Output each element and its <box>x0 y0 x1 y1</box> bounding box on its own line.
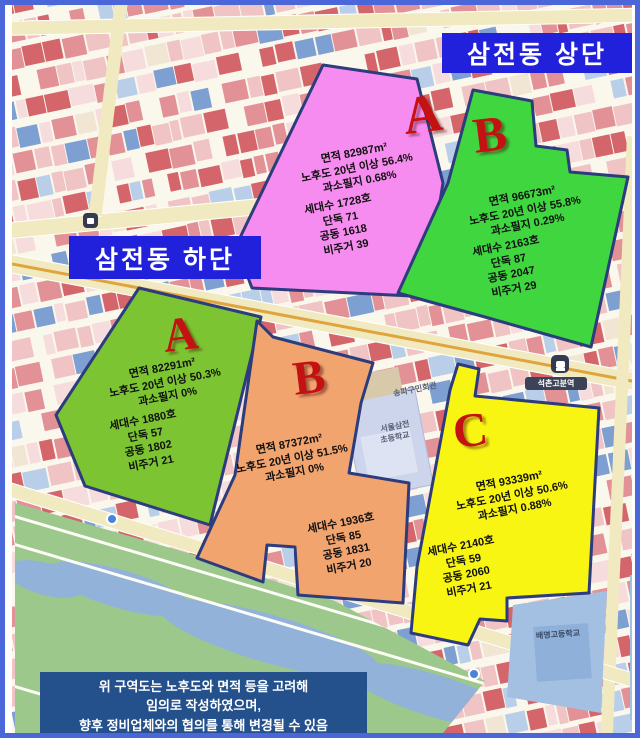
train-glyph <box>556 361 565 368</box>
disclaimer-line: 향후 정비업체와의 협의를 통해 변경될 수 있음 <box>79 716 328 736</box>
zone-letter: B <box>470 103 510 165</box>
left-margin <box>5 5 12 733</box>
right-margin <box>632 5 635 733</box>
subway-station-icon <box>551 355 569 373</box>
base-map: A B A B C 면적 82987m² 노후도 20년 이상 56.4% 과소… <box>5 5 635 733</box>
section-badge-lower: 삼전동 하단 <box>69 236 261 279</box>
bus-stop-icon <box>83 213 98 228</box>
bus-glyph <box>87 218 94 224</box>
zone-letter: C <box>450 401 491 460</box>
bus-stop-icon <box>106 513 118 525</box>
disclaimer-line: 임의로 작성하였으며, <box>146 696 261 716</box>
section-badge-upper: 삼전동 상단 <box>442 33 632 73</box>
disclaimer-box: 위 구역도는 노후도와 면적 등을 고려해 임의로 작성하였으며, 향후 정비업… <box>40 672 367 738</box>
bus-stop-icon <box>468 668 480 680</box>
station-name-badge: 석촌고분역 <box>525 377 587 390</box>
disclaimer-line: 위 구역도는 노후도와 면적 등을 고려해 <box>99 677 308 697</box>
zone-letter: B <box>290 348 328 406</box>
district-map-figure: A B A B C 면적 82987m² 노후도 20년 이상 56.4% 과소… <box>0 0 640 738</box>
